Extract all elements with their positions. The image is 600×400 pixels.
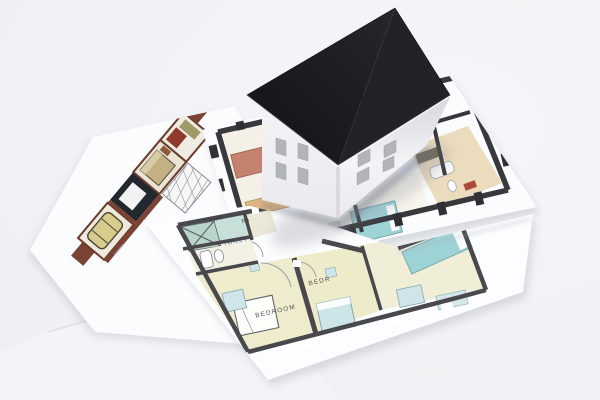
house-corner-shade: [336, 167, 340, 218]
window: [298, 143, 308, 161]
window: [298, 167, 308, 185]
photo-house-model-on-floorplans: SHWR BA TOILET BEDROOM BEDR: [0, 0, 600, 400]
scene: SHWR BA TOILET BEDROOM BEDR: [0, 0, 600, 400]
window: [276, 138, 286, 156]
window: [276, 162, 286, 180]
